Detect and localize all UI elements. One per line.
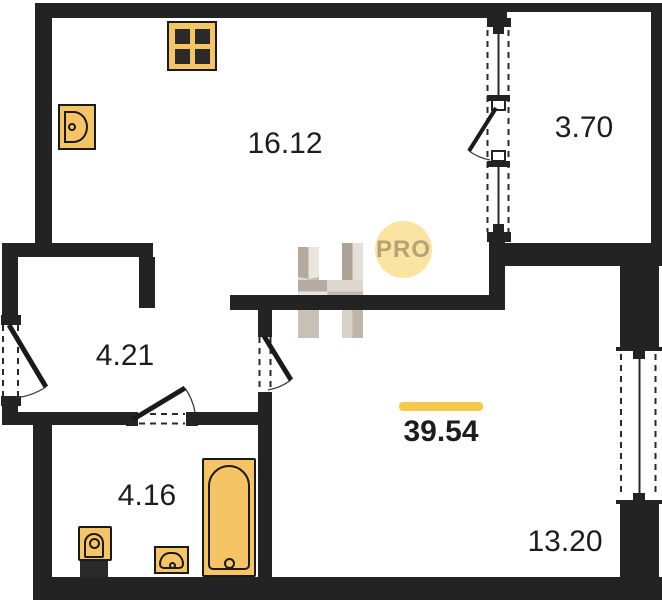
- doors-windows-overlay: [0, 0, 662, 600]
- balcony-door-leaf: [469, 108, 496, 151]
- room-area-hallway: 4.21: [80, 340, 170, 372]
- room-door: [260, 336, 292, 391]
- room-area-balcony: 3.70: [539, 112, 629, 144]
- door-swing-arc: [185, 388, 195, 412]
- total-area-underline: [399, 402, 483, 411]
- bathroom-door: [132, 388, 195, 424]
- balcony-window-door: [469, 18, 511, 242]
- floor-plan: PRO: [0, 0, 662, 600]
- total-area-value: 39.54: [394, 416, 488, 448]
- door-leaf: [9, 325, 46, 387]
- room-window: [616, 347, 662, 504]
- room-area-bathroom: 4.16: [102, 480, 192, 512]
- room-area-kitchen: 16.12: [240, 128, 330, 160]
- entrance-door: [3, 325, 46, 398]
- window-frame: [492, 151, 505, 161]
- room-area-bedroom: 13.20: [520, 526, 610, 558]
- door-swing-arc: [15, 387, 46, 398]
- door-leaf: [264, 336, 291, 380]
- door-leaf: [132, 388, 185, 420]
